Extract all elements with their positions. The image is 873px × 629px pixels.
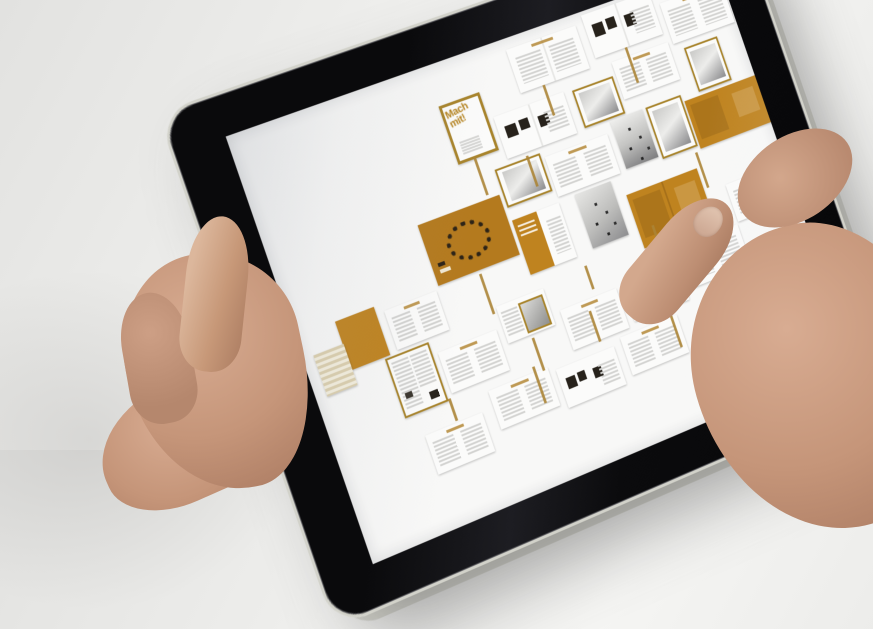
photo-tall-ph	[652, 102, 692, 152]
spread-text[interactable]	[488, 367, 560, 429]
spread-cover[interactable]: Mach mit!	[438, 92, 499, 165]
spread-gradient-dots[interactable]	[574, 181, 628, 248]
thumbs-t1	[504, 123, 519, 138]
text-c2	[460, 423, 489, 455]
text-c2	[646, 52, 674, 82]
text-c1	[627, 336, 655, 368]
spread-orange-heading[interactable]	[512, 203, 577, 275]
text-c2	[548, 37, 582, 72]
spread-text[interactable]	[438, 330, 510, 394]
text-c1	[668, 3, 699, 36]
text-c1	[515, 49, 549, 85]
thumbs-t1	[592, 22, 606, 38]
thumbs-t2	[577, 370, 588, 382]
thumbs-c2	[544, 105, 571, 134]
text-c2	[594, 299, 622, 332]
connector-line	[479, 273, 495, 314]
photo-ls-ph	[502, 160, 546, 202]
text-c1	[433, 434, 462, 467]
cover-cs	[459, 135, 483, 155]
gradient-dots-dots	[594, 202, 597, 206]
cover-title: Mach mit!	[444, 97, 482, 130]
thumbs-t2	[518, 117, 530, 130]
text-c1	[391, 311, 418, 342]
newsprint-t1	[429, 388, 440, 399]
spread-text[interactable]	[425, 413, 495, 475]
connector-line	[448, 398, 458, 421]
spread-photo-ls[interactable]	[495, 153, 553, 208]
orange-heading-c2	[546, 216, 571, 255]
spread-photo-tall[interactable]	[684, 36, 732, 92]
text-c1	[496, 389, 525, 422]
connector-line	[473, 156, 489, 195]
photo-scene: Mach mit!	[0, 0, 873, 450]
gradient-tall-dots	[628, 128, 631, 132]
orange-people-ring	[441, 214, 496, 267]
photo-tall-ph	[690, 43, 726, 86]
text-c2	[474, 340, 503, 373]
orange-people-mark1	[440, 266, 452, 274]
photo-sm-ph	[579, 82, 619, 122]
thumbs-c2	[630, 5, 656, 34]
text-c1	[446, 352, 476, 385]
spread-text[interactable]	[612, 42, 681, 99]
text-c2	[583, 145, 614, 178]
thumb-nail	[688, 201, 729, 243]
text-c1	[553, 156, 584, 189]
spread-text[interactable]	[660, 0, 735, 44]
spread-car[interactable]	[496, 289, 555, 344]
spread-text[interactable]	[384, 291, 449, 350]
thumbs-t1	[565, 375, 577, 389]
spread-text[interactable]	[506, 26, 590, 94]
spread-orange-people[interactable]	[418, 195, 520, 286]
orange-ob2	[731, 86, 760, 117]
orange-ob1	[691, 95, 730, 139]
orange-people-mark2	[437, 260, 446, 266]
connector-line	[584, 265, 595, 289]
text-c2	[416, 301, 443, 332]
thumbs-c2	[598, 358, 621, 384]
thumbs-t2	[605, 16, 617, 29]
text-c2	[697, 0, 727, 25]
spread-thumbs[interactable]	[556, 346, 627, 408]
